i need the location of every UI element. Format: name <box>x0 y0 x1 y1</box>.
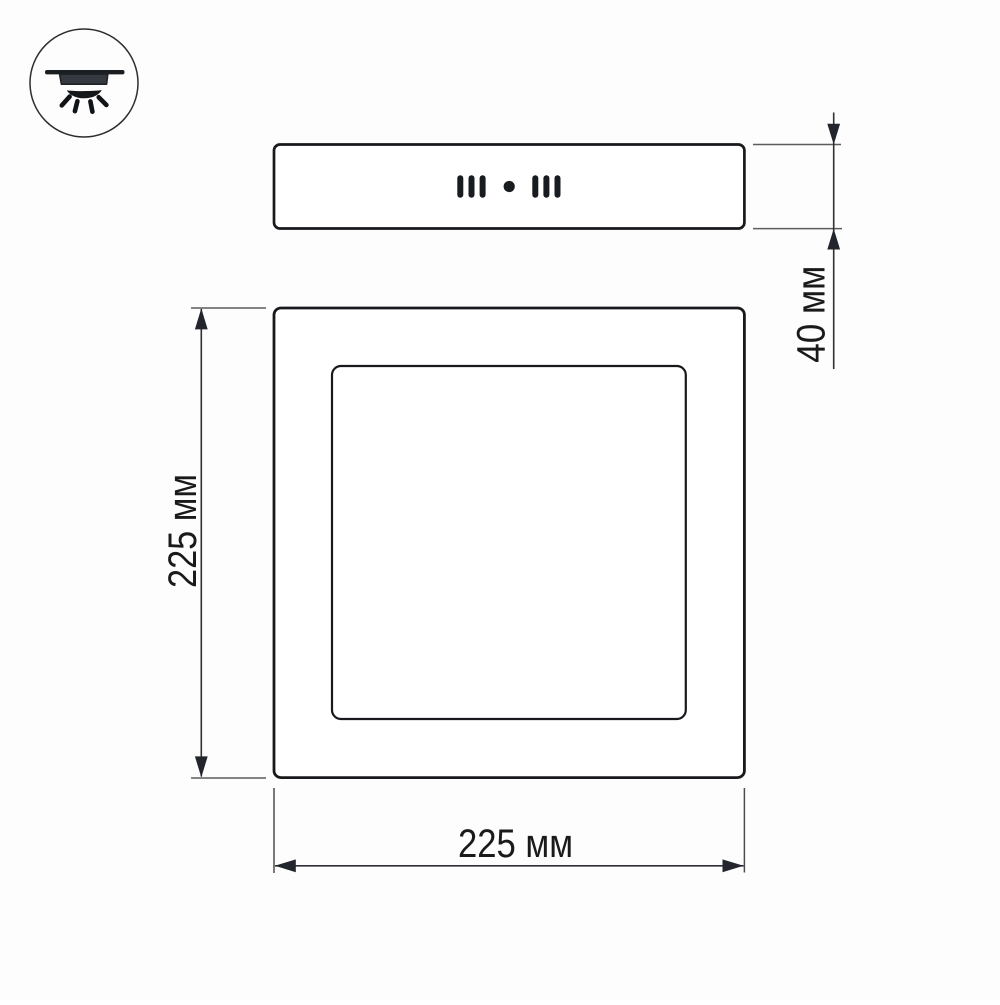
svg-text:225 мм: 225 мм <box>161 474 205 588</box>
svg-text:40 мм: 40 мм <box>790 266 834 363</box>
svg-text:225 мм: 225 мм <box>458 822 573 866</box>
